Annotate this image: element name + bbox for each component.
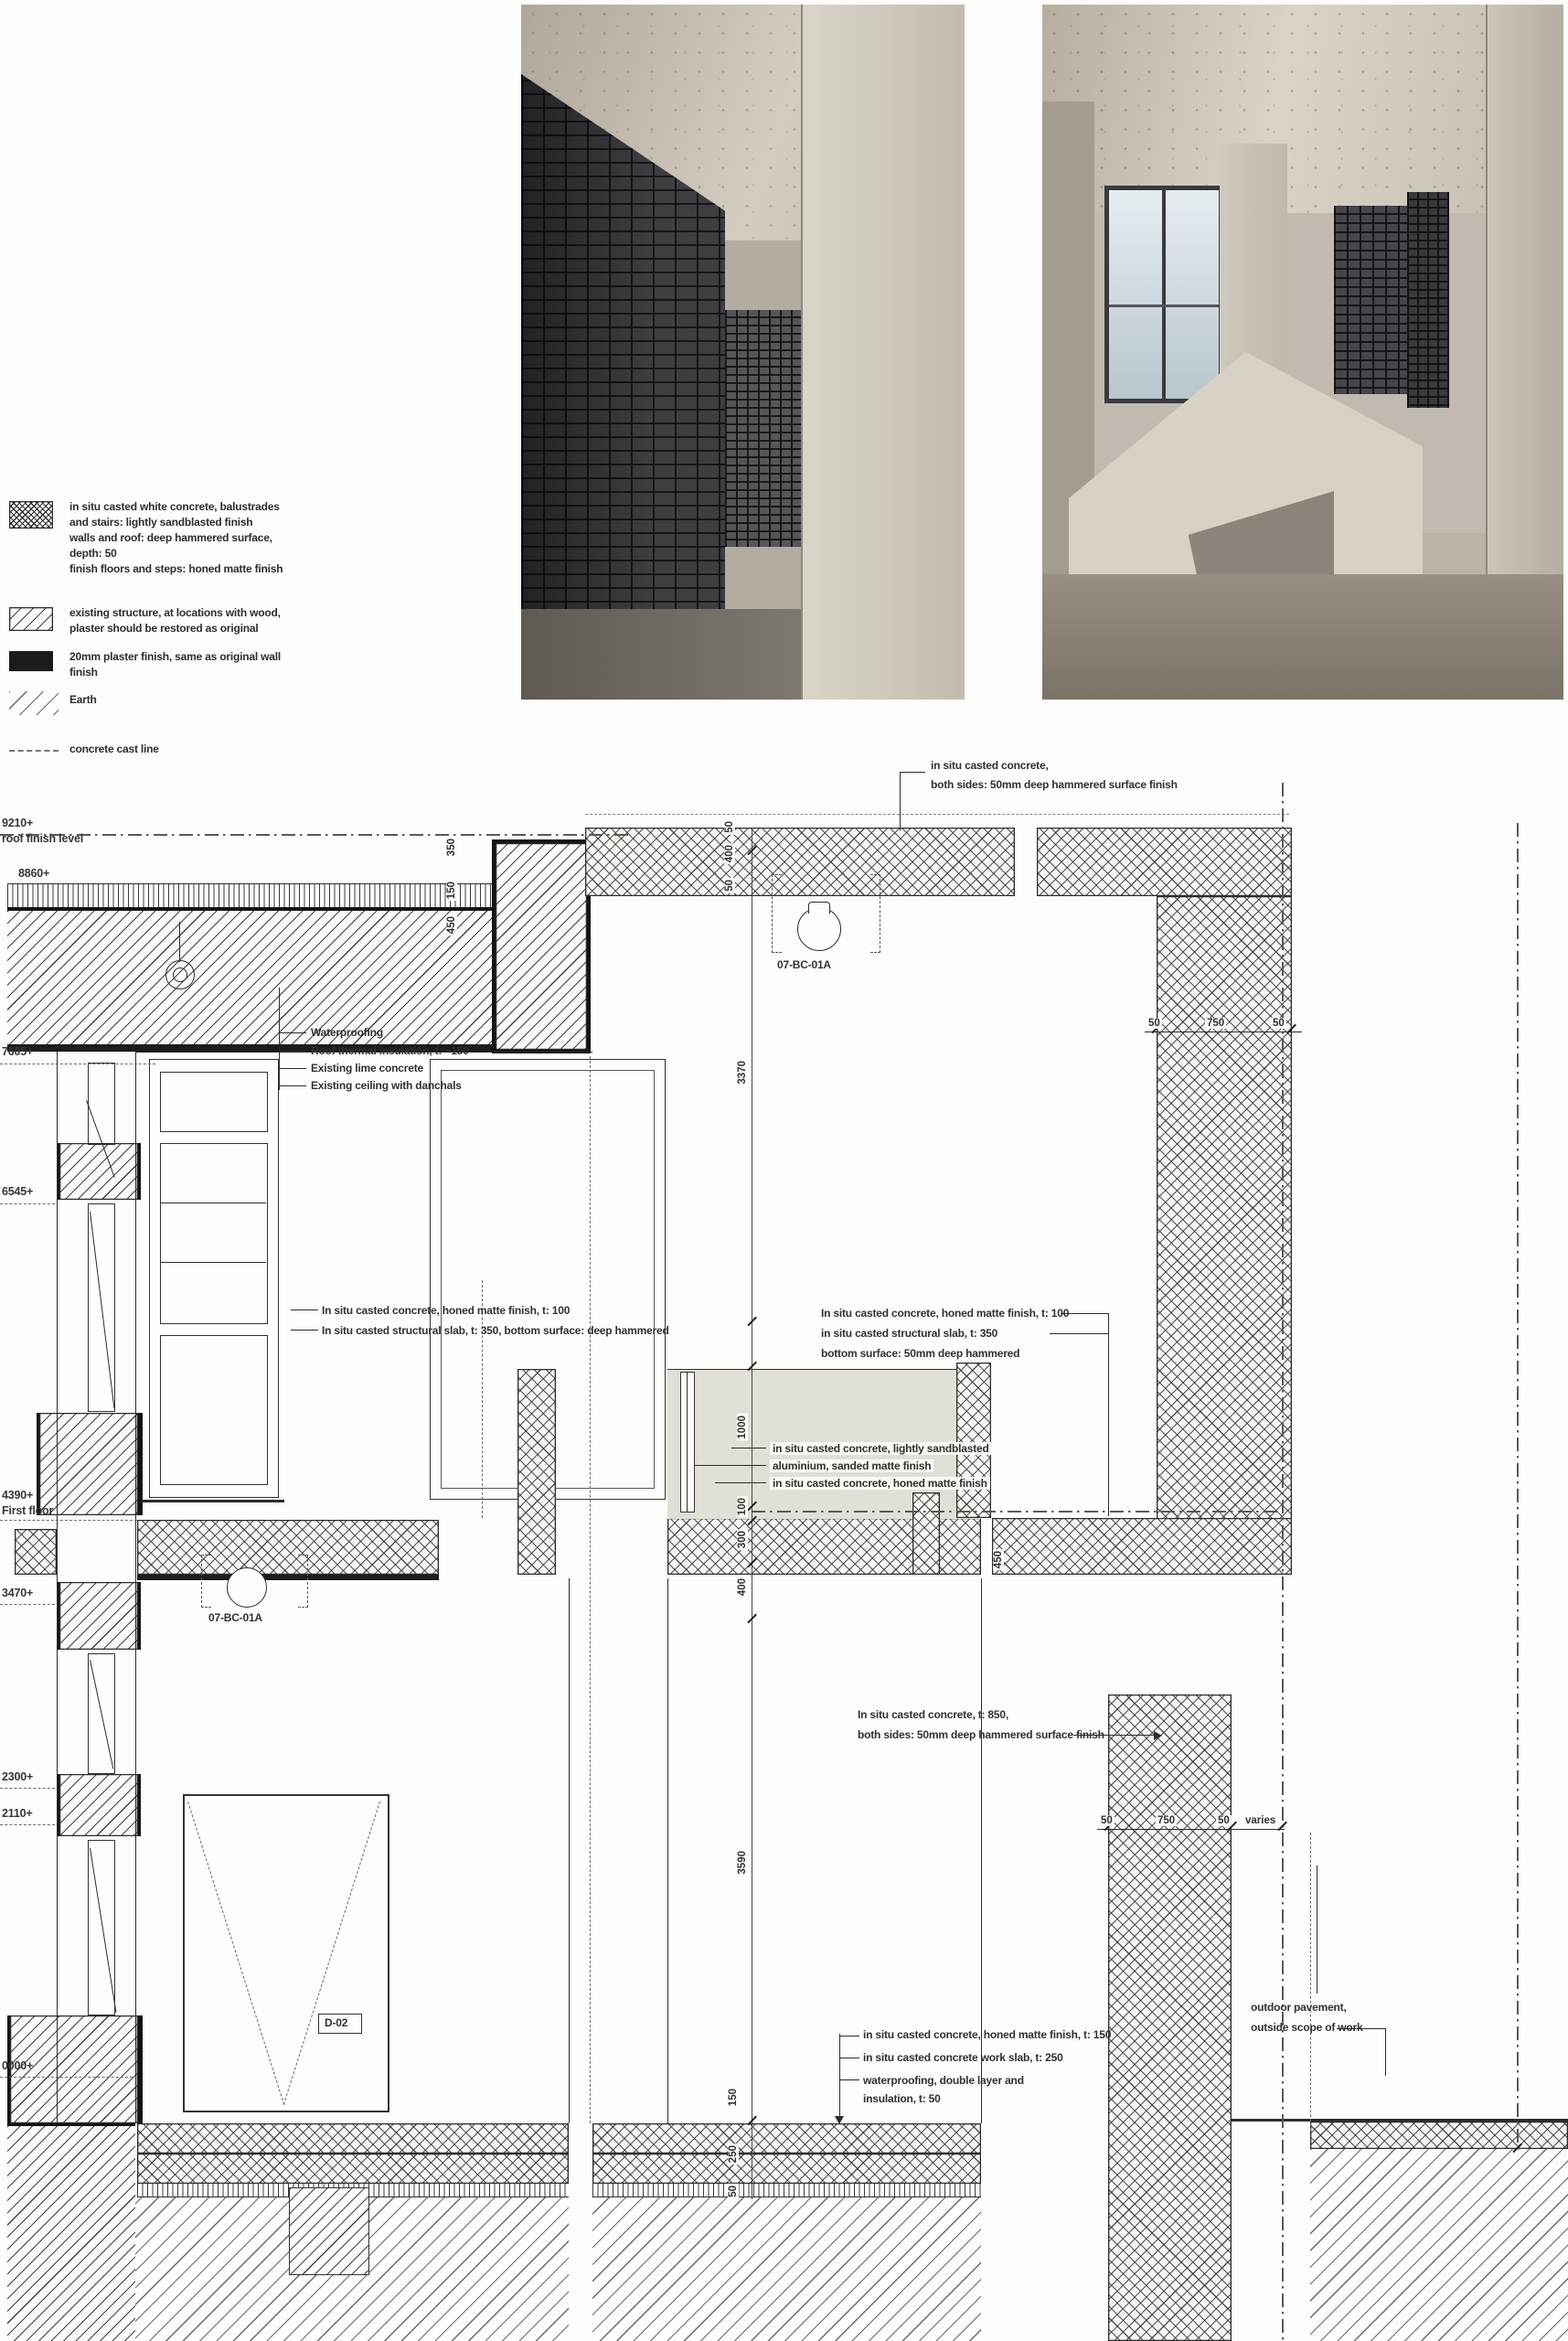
legend-text: finish floors and steps: honed matte fin… <box>69 562 283 575</box>
annotation: waterproofing, double layer and <box>863 2074 1024 2087</box>
slab-left-plaster <box>137 1575 439 1580</box>
earth-center <box>592 2197 981 2341</box>
foundation-pit <box>289 2187 369 2275</box>
wall-window <box>88 1063 115 1145</box>
leader-line <box>1108 1313 1109 1516</box>
shaft-wall-face <box>981 1578 982 2123</box>
legend-text: finish <box>69 666 98 679</box>
photo1-pillar <box>801 5 965 700</box>
level-line-4390 <box>0 1520 137 1521</box>
annotation: aluminium, sanded matte finish <box>770 1459 933 1472</box>
floor-slab-left <box>137 2123 569 2154</box>
wall-window <box>88 1840 115 2015</box>
annotation: in situ casted structural slab, t: 350 <box>821 1327 997 1340</box>
aluminium-channel <box>680 1372 695 1513</box>
leader-line <box>1050 1333 1108 1334</box>
dim-value: 50 <box>1216 1815 1232 1826</box>
annotation: Existing lime concrete <box>311 1062 423 1074</box>
door-tag: D-02 <box>325 2016 347 2029</box>
leader-line <box>839 2079 859 2080</box>
slab-left-stub <box>15 1529 57 1575</box>
leader-line <box>279 1051 306 1052</box>
legend-text: existing structure, at locations with wo… <box>69 606 281 619</box>
dim-value: 250 <box>728 2143 739 2165</box>
photo2-floor <box>1042 574 1563 700</box>
detail-bracket-left <box>772 874 782 953</box>
level-line-3470 <box>0 1604 55 1605</box>
stair-pier-small <box>912 1492 940 1575</box>
left-wall-face <box>57 1052 58 2123</box>
parapet-block <box>492 839 591 1053</box>
leader-line <box>900 772 925 773</box>
detail-bracket-right <box>870 874 880 953</box>
dim-value: varies <box>1243 1815 1277 1826</box>
legend-text: 20mm plaster finish, same as original wa… <box>69 650 281 663</box>
level-label: 3470+ <box>2 1587 33 1599</box>
dim-value: 750 <box>1156 1815 1177 1826</box>
annotation: In situ casted concrete, t: 850, <box>858 1708 1008 1721</box>
window-mullion <box>160 1203 266 1203</box>
upper-right-wall <box>1157 896 1292 1520</box>
dim-value: 3370 <box>737 1059 748 1086</box>
legend-text: Earth <box>69 693 97 706</box>
level-label: 4390+ <box>2 1489 33 1502</box>
window-brace <box>90 1212 115 1408</box>
window-brace <box>90 1660 114 1769</box>
site-boundary-axis <box>1517 823 1519 2151</box>
annotation: insulation, t: 50 <box>863 2092 941 2105</box>
leader-line <box>1385 2028 1386 2076</box>
leader-line <box>279 1085 306 1086</box>
left-wall-face <box>135 1052 136 2123</box>
crosshatch-dense-icon <box>9 501 53 529</box>
leader-line <box>1317 1865 1317 1994</box>
floor-workslab-left <box>137 2154 569 2184</box>
annotation: in situ casted concrete, <box>931 759 1049 772</box>
dim-value: 450 <box>993 1549 1004 1570</box>
balustrade-wall <box>956 1363 991 1518</box>
annotation: outside scope of work <box>1251 2021 1363 2034</box>
leader-line <box>695 1465 766 1466</box>
leader-arrow <box>1154 1731 1167 1740</box>
leader-line <box>1061 1313 1108 1314</box>
light-bulb-icon <box>173 967 187 982</box>
left-foundation <box>7 2123 135 2341</box>
dim-value: 3590 <box>737 1849 748 1876</box>
leader-line <box>291 1309 318 1310</box>
leader-line <box>839 2036 859 2036</box>
dim-value: 50 <box>1147 1018 1162 1029</box>
drawing-sheet: in situ casted white concrete, balustrad… <box>0 0 1568 2341</box>
level-line-6545 <box>0 1203 55 1204</box>
dim-value: 1000 <box>737 1414 748 1441</box>
window-mullion <box>160 1262 266 1263</box>
annotation: outdoor pavement, <box>1251 2001 1347 2014</box>
dim-value: 50 <box>724 819 735 835</box>
door-elevation <box>183 1794 389 2112</box>
annotation: Existing ceiling with danchals <box>311 1079 462 1092</box>
cast-line-top <box>585 814 1289 815</box>
detail-bracket-right <box>298 1555 308 1608</box>
legend-text: plaster should be restored as original <box>69 622 258 635</box>
window-brace <box>90 1848 117 2013</box>
photo1-floor <box>521 609 801 700</box>
level-label: 2300+ <box>2 1770 33 1783</box>
legend-text: walls and roof: deep hammered surface, <box>69 531 272 544</box>
level-label: First floor <box>2 1504 53 1517</box>
shaft-wall-face <box>667 1578 668 2123</box>
annotation: both sides: 50mm deep hammered surface f… <box>858 1728 1104 1741</box>
dim-value: 150 <box>728 2087 739 2108</box>
left-wall-segment <box>57 1143 141 1200</box>
level-line-9210 <box>0 834 629 836</box>
window-elevation-top <box>160 1072 268 1132</box>
leader-line <box>839 2034 840 2085</box>
level-label: roof finish level <box>2 832 83 845</box>
left-wall-segment <box>37 1413 143 1515</box>
dim-value: 100 <box>737 1496 748 1517</box>
wall-window <box>88 1653 115 1774</box>
left-wall-segment <box>57 1582 141 1650</box>
detail-tag: 07-BC-01A <box>208 1611 262 1624</box>
annotation: Waterproofing <box>311 1026 383 1039</box>
leader-line <box>839 2085 840 2120</box>
detail-marker-icon <box>227 1567 267 1608</box>
level-label: 2110+ <box>2 1807 32 1820</box>
shaft-wall-face <box>569 1578 570 2123</box>
wall-axis-line <box>1282 783 1284 2341</box>
dim-value: 50 <box>1271 1018 1286 1029</box>
outdoor-pavement-band <box>1310 2122 1568 2149</box>
detail-tag: 07-BC-01A <box>777 958 831 971</box>
pavement-boundary <box>1310 1833 1311 2131</box>
lobby-interior-photo <box>1042 5 1563 700</box>
detail-marker-icon <box>797 907 841 951</box>
dim-value: 50 <box>724 878 735 893</box>
left-wall-segment <box>57 1774 141 1836</box>
annotation: Roof thermal insulation, t: ~150 <box>311 1044 469 1057</box>
dim-value: 50 <box>728 2184 739 2199</box>
annotation: In situ casted concrete, honed matte fin… <box>821 1307 1069 1320</box>
level-label: 0000+ <box>2 2059 33 2072</box>
dim-value: 750 <box>1205 1018 1226 1029</box>
dashed-line-icon <box>9 750 59 752</box>
leader-line <box>1337 2028 1386 2029</box>
photo2-lockers-dark <box>1407 192 1449 408</box>
level-line-2300 <box>0 1788 55 1789</box>
annotation: bottom surface: 50mm deep hammered <box>821 1347 1019 1360</box>
cast-line-vertical <box>590 1056 591 2123</box>
dim-value: 150 <box>446 880 457 901</box>
level-label: 8860+ <box>18 867 49 880</box>
leader-line <box>731 1448 766 1448</box>
lower-right-wall <box>1108 1694 1232 2341</box>
aluminium-channel-line <box>687 1373 688 1512</box>
dim-value: 400 <box>724 843 735 864</box>
leader-line <box>279 1032 306 1033</box>
vault-corridor-photo <box>521 5 965 700</box>
slab-left <box>137 1520 439 1575</box>
window-elevation-mid <box>160 1143 268 1324</box>
dim-value: 50 <box>1099 1815 1115 1826</box>
window-elevation-bottom <box>160 1335 268 1485</box>
main-dim-line <box>752 828 752 2199</box>
photo2-window-mullion <box>1162 190 1166 399</box>
window-sill <box>142 1500 284 1502</box>
level-label: 7605+ <box>2 1045 33 1058</box>
annotation: In situ casted structural slab, t: 350, … <box>322 1324 669 1337</box>
annotation: In situ casted concrete, honed matte fin… <box>322 1304 570 1317</box>
earth-hatch-icon <box>9 691 59 715</box>
leader-line <box>839 2058 859 2058</box>
diagonal-hatch-icon <box>9 607 53 631</box>
solid-black-icon <box>9 651 53 671</box>
level-line-7605 <box>0 1064 155 1064</box>
balustrade-pier <box>517 1369 556 1575</box>
legend-text: concrete cast line <box>69 743 159 755</box>
legend-text: depth: 50 <box>69 547 117 560</box>
level-label: 9210+ <box>2 817 33 829</box>
floor-slab-center <box>592 2123 981 2154</box>
photo1-locker-wall-far <box>725 310 800 546</box>
dim-value: 400 <box>737 1577 748 1598</box>
level-line-0000 <box>0 2077 133 2078</box>
light-pendant-stem <box>179 922 180 962</box>
leader-arrow <box>835 2116 844 2129</box>
floor-workslab-center <box>592 2154 981 2184</box>
floor-insulation-center <box>592 2184 981 2197</box>
slab-right <box>992 1518 1292 1575</box>
annotation: both sides: 50mm deep hammered surface f… <box>931 778 1178 791</box>
dim-value: 350 <box>446 837 457 858</box>
leader-line <box>1073 1735 1157 1736</box>
wall-window <box>88 1203 115 1412</box>
legend-text: and stairs: lightly sandblasted finish <box>69 516 252 529</box>
annotation: in situ casted concrete work slab, t: 25… <box>863 2051 1063 2064</box>
leader-line <box>279 988 280 1090</box>
photo2-window <box>1104 186 1223 403</box>
detail-marker-notch <box>808 902 830 914</box>
wall-dim-line-upper <box>1145 1032 1302 1032</box>
dim-value: 300 <box>737 1529 748 1550</box>
leader-line <box>291 1330 318 1331</box>
first-floor-castline <box>752 1511 1282 1513</box>
level-line-2110 <box>0 1824 55 1825</box>
top-wall-band <box>585 828 1015 896</box>
leader-line <box>900 772 901 830</box>
level-label: 6545+ <box>2 1185 33 1198</box>
earth-right <box>1310 2149 1568 2341</box>
wall-dim-line-lower <box>1097 1829 1285 1830</box>
annotation: in situ casted concrete, lightly sandbla… <box>770 1442 992 1455</box>
legend-text: in situ casted white concrete, balustrad… <box>69 500 280 513</box>
leader-line <box>279 1068 306 1069</box>
annotation: in situ casted concrete, honed matte fin… <box>863 2028 1111 2041</box>
top-wall-band <box>1037 828 1292 896</box>
dim-value: 450 <box>446 914 457 935</box>
photo2-lockers <box>1334 206 1407 393</box>
annotation: in situ casted concrete, honed matte fin… <box>770 1477 990 1490</box>
detail-bracket-left <box>201 1555 211 1608</box>
leader-line <box>715 1482 766 1483</box>
photo2-window-transom <box>1109 305 1219 307</box>
